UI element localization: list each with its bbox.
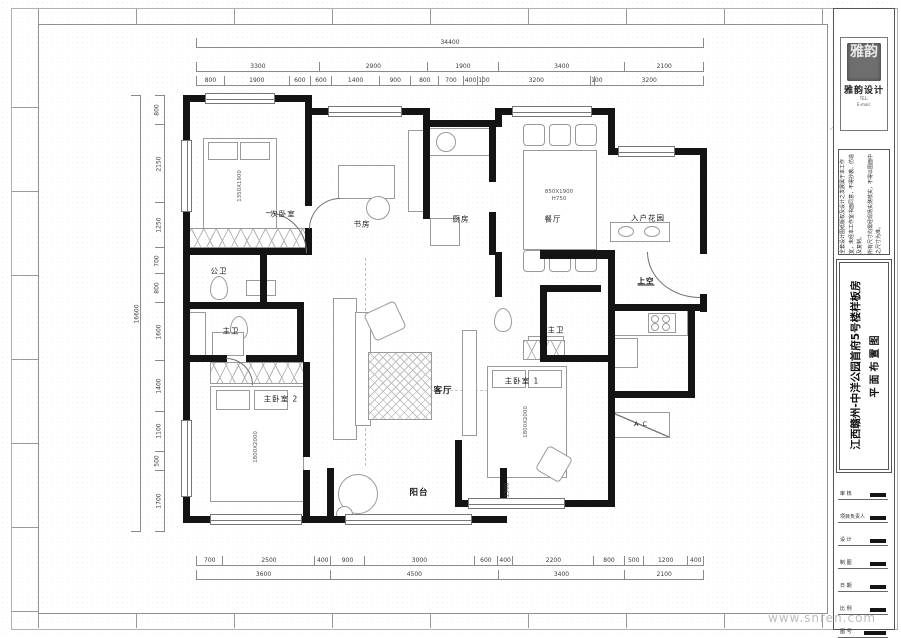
title-row-value	[870, 562, 886, 566]
bed-size-label: 1350X1900	[237, 170, 243, 202]
room-label-kitchen: 厨房	[453, 214, 470, 225]
pillow	[208, 142, 238, 160]
title-row-value	[870, 585, 886, 589]
table-size-label: 850X1900	[545, 189, 573, 195]
table-height-label: H750	[552, 196, 567, 202]
title-row-value	[870, 493, 886, 497]
title-row-reviewer: 审 核	[838, 478, 888, 500]
label-ac-platform: A C	[634, 420, 648, 428]
title-row-designer: 设 计	[838, 524, 888, 546]
window	[181, 140, 192, 212]
toilet	[494, 308, 512, 332]
project-title-box: 江西赣州-中洋公园首府5号楼样板房 平面布置图	[836, 259, 892, 473]
window	[181, 420, 192, 497]
title-row-project-lead: 项目负责人	[838, 501, 888, 523]
floor-plan	[0, 0, 901, 637]
rug	[368, 352, 432, 420]
room-label-master-bedroom2: 主卧室 2	[264, 394, 299, 405]
wall-segment	[608, 391, 615, 507]
title-row-drafter: 制 图	[838, 547, 888, 569]
toilet	[210, 276, 228, 300]
pillow	[240, 142, 270, 160]
title-row-value	[870, 539, 886, 543]
wall-segment	[608, 391, 693, 398]
studio-seal-logo: 雅韵	[847, 43, 881, 81]
title-rows: 审 核 项目负责人 设 计 制 图 日 期 比 例 图 号	[838, 477, 888, 617]
room-label-bedroom2: 次卧室	[270, 209, 296, 220]
wall-segment	[495, 252, 502, 297]
room-label-balcony: 阳台	[409, 486, 428, 498]
dining-chair	[523, 124, 545, 146]
wall-segment	[540, 250, 615, 259]
room-label-public-bath: 公卫	[211, 266, 228, 277]
decor	[644, 226, 660, 237]
drawing-sheet: 34400 33002900190034002100 8001900600600…	[0, 0, 901, 637]
project-name: 江西赣州-中洋公园首府5号楼样板房	[848, 280, 863, 449]
decor	[618, 226, 634, 237]
wall-segment	[303, 362, 310, 457]
vanity	[188, 312, 206, 356]
wall-segment	[260, 252, 267, 307]
kitchen-sink	[436, 132, 456, 152]
burner	[662, 315, 670, 323]
wall-segment	[489, 212, 496, 255]
room-label-master-bath-left: 主卫	[223, 326, 240, 337]
title-row-value	[870, 516, 886, 520]
wall-segment	[700, 148, 707, 254]
sofa	[333, 298, 357, 440]
studio-name: 雅韵设计	[841, 83, 887, 96]
bookshelf	[408, 130, 424, 212]
brand-box: 雅韵 雅韵设计 TEL: E-mail:	[840, 37, 888, 131]
copyright-note-1: 全套设计图纸版权及设计之发展属于本工作室，未经本工作室书面同意，不得抄袭、仿造及…	[839, 150, 865, 254]
wall-segment	[608, 252, 615, 398]
title-row-date: 日 期	[838, 570, 888, 592]
room-label-void: 上空	[638, 276, 655, 287]
burner	[662, 323, 670, 331]
studio-contact: TEL: E-mail:	[841, 96, 887, 109]
dim-balcony-depth: 1500	[504, 482, 511, 497]
wall-segment	[183, 355, 227, 362]
wall-segment	[688, 304, 695, 398]
wall-segment	[246, 355, 304, 362]
wall-segment	[546, 285, 601, 292]
wardrobe	[210, 362, 304, 384]
window	[345, 514, 472, 525]
title-block: 雅韵 雅韵设计 TEL: E-mail: 全套设计图纸版权及设计之发展属于本工作…	[833, 8, 895, 630]
copyright-notes-box: 全套设计图纸版权及设计之发展属于本工作室，未经本工作室书面同意，不得抄袭、仿造及…	[838, 149, 890, 255]
room-label-living: 客厅	[433, 384, 452, 396]
wall-segment	[327, 468, 334, 523]
sink-counter	[614, 338, 638, 368]
room-label-master-bath-right: 主卫	[548, 325, 565, 336]
wall-segment	[540, 355, 608, 362]
dining-chair	[549, 124, 571, 146]
tv-cabinet	[462, 330, 477, 436]
wall-segment	[423, 120, 502, 127]
copyright-note-2: 所有尺寸均需经现场实测核实，不得以图面中之尺寸为准。	[867, 150, 884, 254]
room-label-master-bedroom1: 主卧室 1	[505, 376, 540, 387]
window	[618, 146, 675, 157]
room-label-study: 书房	[354, 219, 371, 230]
window	[512, 106, 592, 117]
window	[205, 93, 275, 104]
desk-chair	[366, 196, 390, 220]
drawing-name: 平面布置图	[866, 333, 881, 398]
studio-email: E-mail:	[841, 102, 887, 108]
desk	[338, 165, 395, 199]
title-row-value	[864, 631, 886, 635]
site-watermark: www.snren.com	[768, 611, 876, 625]
room-label-dining: 餐厅	[545, 214, 562, 225]
wall-segment	[700, 294, 707, 312]
wall-segment	[423, 127, 430, 219]
room-label-entry-garden: 入户花园	[631, 213, 665, 224]
wall-segment	[489, 127, 496, 182]
burner	[651, 315, 659, 323]
window	[328, 106, 402, 117]
dining-chair	[575, 124, 597, 146]
wall-segment	[183, 302, 304, 309]
window	[468, 498, 565, 509]
wall-segment	[455, 440, 462, 507]
wall-segment	[305, 114, 312, 206]
pillow	[216, 390, 250, 410]
wall-segment	[540, 285, 547, 362]
window	[210, 514, 302, 525]
bed-size-label: 1800X2000	[253, 431, 259, 463]
wall-segment	[608, 304, 700, 311]
burner	[651, 323, 659, 331]
bed-size-label: 1800X2000	[523, 406, 529, 438]
